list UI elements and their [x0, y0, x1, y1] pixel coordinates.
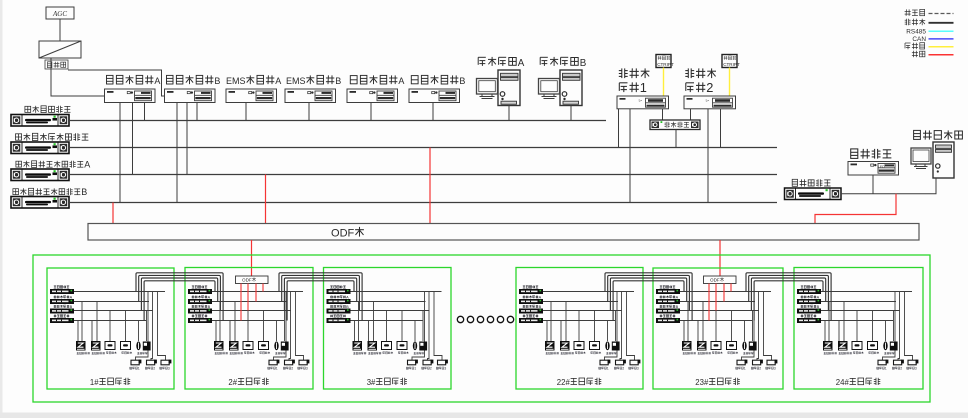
- svg-text:2: 2: [291, 366, 293, 370]
- svg-text:1: 1: [414, 366, 416, 370]
- svg-text:3: 3: [168, 366, 170, 370]
- svg-text:LED: LED: [878, 165, 885, 169]
- svg-text:2: 2: [153, 366, 155, 370]
- svg-text:2: 2: [900, 366, 902, 370]
- svg-text:B: B: [208, 305, 211, 309]
- svg-text:A: A: [84, 160, 90, 170]
- svg-text:1: 1: [138, 366, 140, 370]
- svg-text:3: 3: [306, 366, 308, 370]
- svg-text:S: S: [240, 76, 246, 86]
- svg-text:N: N: [921, 36, 926, 43]
- svg-text:B: B: [346, 305, 349, 309]
- svg-text:D: D: [340, 228, 348, 240]
- svg-text:2: 2: [622, 366, 624, 370]
- svg-text:A: A: [208, 295, 211, 299]
- svg-text:L▪: L▪: [706, 98, 709, 102]
- svg-text:B: B: [335, 76, 341, 86]
- svg-text:A: A: [70, 295, 73, 299]
- svg-text:3: 3: [915, 366, 917, 370]
- svg-text:#: #: [233, 378, 238, 387]
- svg-text:B: B: [70, 305, 73, 309]
- svg-text:F: F: [249, 278, 252, 283]
- svg-text:2: 2: [706, 80, 713, 95]
- svg-text:A: A: [676, 295, 679, 299]
- svg-text:3: 3: [774, 366, 776, 370]
- svg-text:A: A: [346, 295, 349, 299]
- svg-text:B: B: [817, 305, 820, 309]
- svg-text:1: 1: [607, 366, 609, 370]
- svg-text:CTRIPT: CTRIPT: [723, 62, 740, 67]
- svg-text:2: 2: [759, 366, 761, 370]
- svg-text:CTRIPT: CTRIPT: [657, 62, 674, 67]
- svg-text:A: A: [154, 76, 160, 86]
- svg-text:#: #: [704, 378, 709, 387]
- svg-text:A: A: [817, 295, 820, 299]
- svg-text:3: 3: [444, 366, 446, 370]
- svg-text:A: A: [275, 76, 281, 86]
- svg-text:B: B: [81, 187, 87, 197]
- svg-text:B: B: [539, 305, 542, 309]
- svg-text:1: 1: [744, 366, 746, 370]
- svg-text:M: M: [232, 76, 240, 86]
- svg-text:F: F: [348, 228, 355, 240]
- svg-text:#: #: [845, 378, 850, 387]
- svg-text:#: #: [371, 378, 376, 387]
- svg-text:5: 5: [922, 29, 926, 36]
- svg-text:#: #: [566, 378, 571, 387]
- svg-text:L▪: L▪: [639, 98, 642, 102]
- svg-text:B: B: [214, 76, 220, 86]
- svg-text:1: 1: [885, 366, 887, 370]
- svg-text:A: A: [398, 76, 404, 86]
- svg-text:F: F: [717, 278, 720, 283]
- svg-text:B: B: [676, 305, 679, 309]
- svg-text:M: M: [292, 76, 300, 86]
- svg-text:B: B: [459, 76, 465, 86]
- svg-text:3: 3: [637, 366, 639, 370]
- svg-text:AGC: AGC: [52, 10, 67, 18]
- svg-text:S: S: [300, 76, 306, 86]
- svg-text:2: 2: [430, 366, 432, 370]
- svg-text:1: 1: [640, 80, 647, 95]
- svg-text:#: #: [94, 378, 99, 387]
- svg-text:1: 1: [276, 366, 278, 370]
- svg-text:A: A: [518, 58, 525, 69]
- svg-text:A: A: [539, 295, 542, 299]
- svg-text:B: B: [580, 58, 587, 69]
